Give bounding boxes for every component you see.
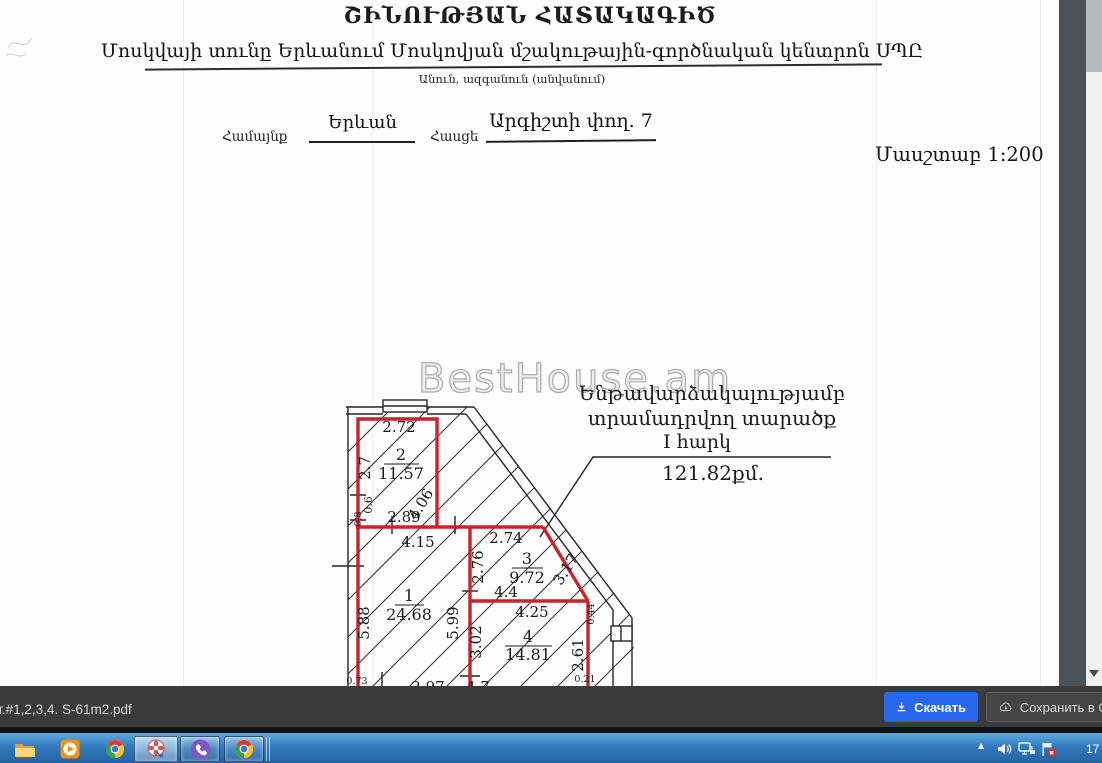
desktop-screen: ՇԻՆՈՒԹՅԱՆ ՀԱՏԱԿԱԳԻԾ Մոսկվայի տունը Երևան…: [0, 0, 1102, 763]
chrome-icon: [234, 739, 254, 759]
taskbar-item-screenshot-tool[interactable]: [134, 736, 178, 762]
dim-label: 4.7: [466, 678, 490, 686]
subtitle-rule: [145, 63, 882, 70]
dim-label: 4.25: [515, 603, 548, 621]
media-player-icon: [60, 739, 80, 759]
callout-line2: տրամադրվող տարածք: [588, 406, 836, 430]
dim-label: 2.7: [356, 456, 374, 480]
taskbar-item-explorer[interactable]: [8, 737, 42, 761]
dim-label: 0.73: [346, 676, 367, 686]
room-number: 4: [523, 627, 533, 646]
room-area: 14.81: [505, 645, 551, 664]
folder-icon: [14, 741, 36, 758]
taskbar-clock[interactable]: 17: [1086, 742, 1099, 756]
address-label: Հասցե: [430, 129, 478, 145]
room-area: 24.68: [386, 605, 432, 624]
document-title: ՇԻՆՈՒԹՅԱՆ ՀԱՏԱԿԱԳԻԾ: [0, 3, 1059, 29]
show-hidden-icons-button[interactable]: ▲: [978, 741, 984, 750]
dim-label: 0.8: [353, 511, 364, 526]
viewer-background: [1059, 0, 1086, 686]
taskbar-item-viber[interactable]: [180, 736, 220, 762]
dim-label: 3.02: [467, 625, 485, 658]
tray-action-center[interactable]: [1040, 741, 1057, 758]
callout-floor: I հարկ: [663, 431, 731, 453]
paper-fold-line: [1040, 0, 1041, 686]
network-icon: [1018, 741, 1036, 757]
paper-fold-line: [183, 0, 184, 686]
dim-label: 2.61: [569, 638, 587, 671]
community-underline: [309, 141, 415, 143]
dim-label: 4.15: [401, 533, 434, 551]
cloud-icon: [999, 700, 1013, 714]
tray-network[interactable]: [1018, 741, 1036, 757]
dim-label: 5.99: [444, 606, 462, 639]
chevron-down-icon: [1089, 670, 1099, 682]
callout-area: 121.82քմ.: [662, 461, 764, 485]
download-label: Скачать: [914, 700, 966, 715]
window-stack-edge: [269, 737, 270, 761]
floor-plan: 2 11.57 1 24.68 3 9.72 4 14.81 2.72 2.7 …: [330, 380, 850, 686]
pdf-filename: от.#1,2,3,4. S-61m2.pdf: [0, 702, 132, 717]
address-underline: [486, 139, 656, 143]
community-value: Երևան: [310, 112, 415, 133]
flag-icon: [1040, 741, 1057, 758]
address-value: Արգիշտի փող. 7: [487, 110, 655, 132]
dim-label: 2.97: [411, 678, 444, 686]
document-page: ՇԻՆՈՒԹՅԱՆ ՀԱՏԱԿԱԳԻԾ Մոսկվայի տունը Երևան…: [0, 0, 1059, 686]
room-number: 2: [396, 445, 406, 464]
viber-icon: [190, 739, 211, 760]
dim-label: 5.88: [355, 606, 373, 639]
save-to-cloud-button[interactable]: Сохранить в Обл: [986, 692, 1102, 722]
save-label: Сохранить в Обл: [1020, 700, 1102, 715]
screenshot-tool-icon: [145, 738, 167, 760]
dim-label: 2.72: [382, 418, 415, 436]
scale-label: Մասշտաբ 1:200: [875, 143, 1044, 166]
speaker-icon: [996, 741, 1012, 757]
subtitle-caption: Անուն, ազգանուն (անվանում): [0, 72, 1024, 86]
room-area: 11.57: [378, 464, 424, 483]
taskbar: ▲ 17: [0, 733, 1102, 763]
taskbar-item-chrome[interactable]: [98, 737, 132, 761]
window-stack-edge: [266, 737, 267, 761]
chrome-icon: [105, 739, 125, 759]
pdf-toolbar: от.#1,2,3,4. S-61m2.pdf Скачать Сохранит…: [0, 686, 1102, 727]
scrollbar-track[interactable]: [1086, 0, 1102, 686]
dim-label: 2.74: [489, 529, 522, 547]
room-number: 1: [404, 586, 414, 605]
scrollbar-thumb[interactable]: [1086, 0, 1102, 72]
document-subtitle: Մոսկվայի տունը Երևանում Մոսկովյան մշակու…: [0, 40, 1024, 62]
dim-label: 0.6: [362, 496, 375, 514]
download-button[interactable]: Скачать: [884, 692, 978, 722]
taskbar-item-chrome-window[interactable]: [224, 736, 264, 762]
dim-label: 0.21: [574, 674, 595, 685]
callout-line1: Ենթավարձակալությամբ: [579, 381, 845, 405]
room-number: 3: [522, 549, 532, 568]
dim-label: 4.4: [494, 583, 518, 601]
dim-label: 2.76: [469, 550, 487, 583]
taskbar-item-media-player[interactable]: [53, 737, 87, 761]
dim-label: 4.06: [404, 485, 437, 523]
tray-volume[interactable]: [996, 741, 1012, 757]
download-icon: [896, 700, 907, 714]
dim-label: 0.44: [586, 603, 597, 624]
scrollbar-down-button[interactable]: [1086, 662, 1102, 684]
paper-fold-line: [876, 0, 877, 686]
community-label: Համայնք: [222, 129, 287, 145]
